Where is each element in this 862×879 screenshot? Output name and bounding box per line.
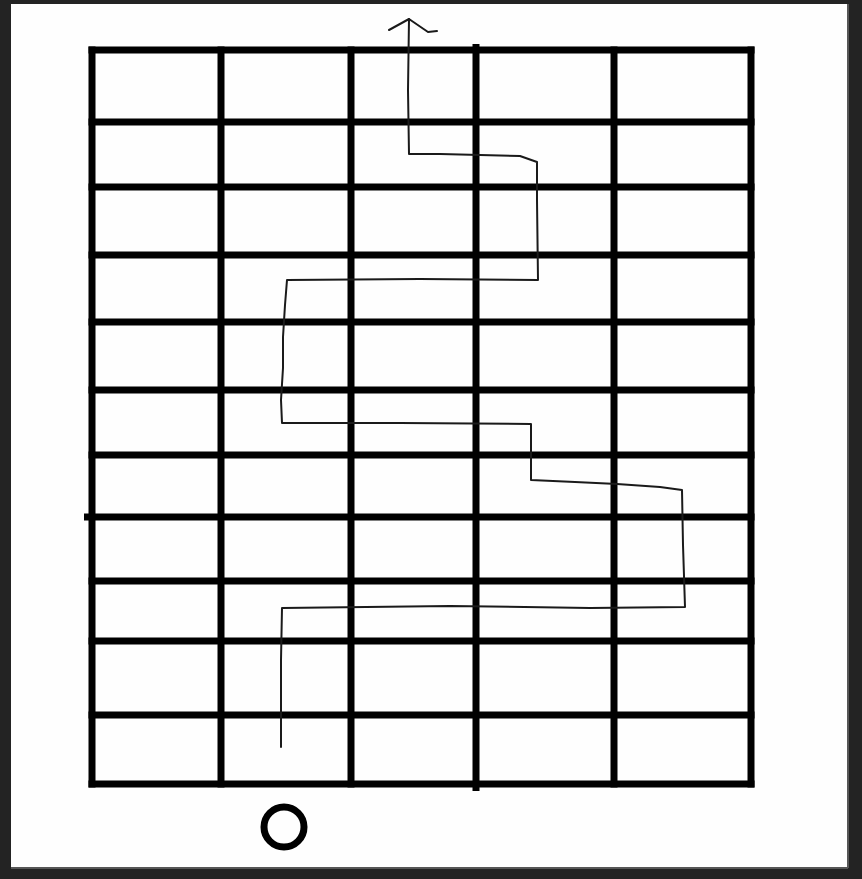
- drawing-app-viewport: [0, 0, 862, 879]
- maze-canvas[interactable]: [0, 0, 862, 879]
- paper: [11, 4, 848, 868]
